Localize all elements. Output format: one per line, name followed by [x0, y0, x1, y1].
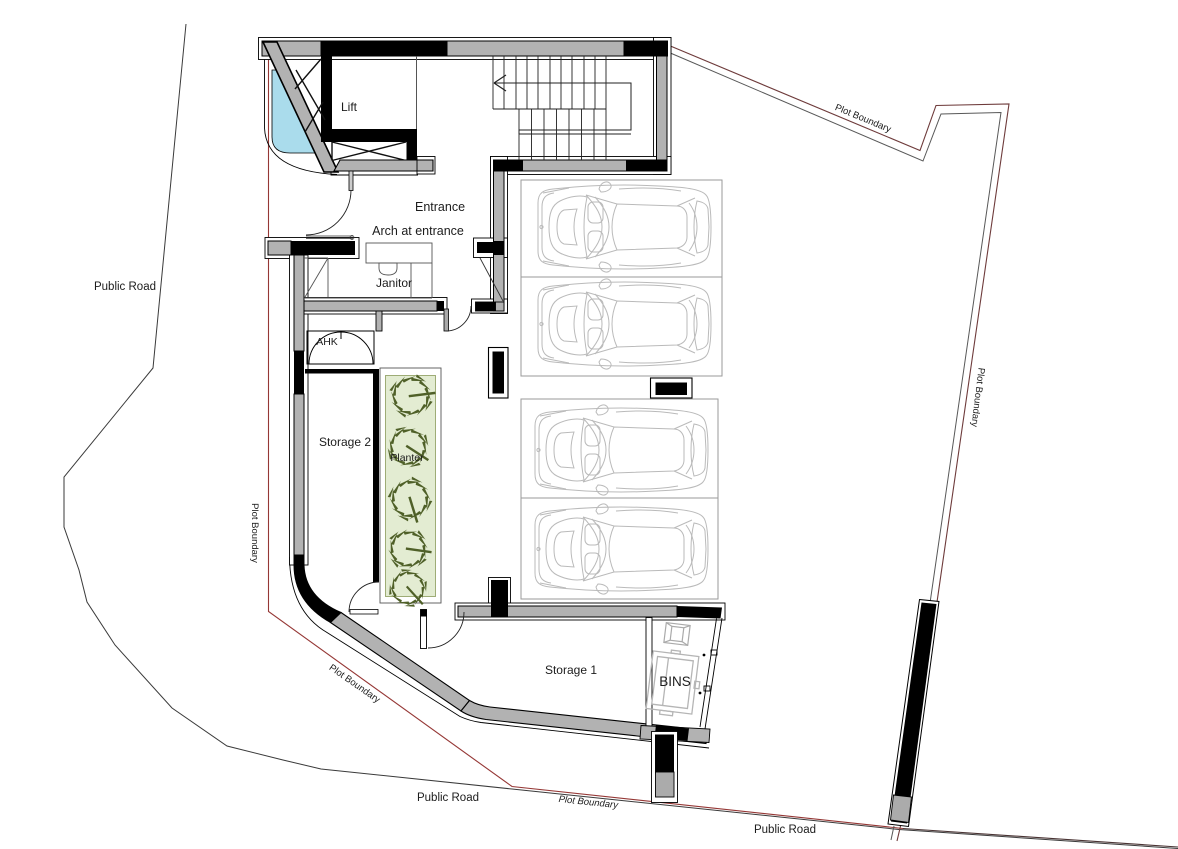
- svg-text:Entrance: Entrance: [415, 200, 465, 214]
- svg-text:Lift: Lift: [341, 100, 358, 114]
- svg-text:BINS: BINS: [659, 674, 691, 689]
- svg-text:Storage 1: Storage 1: [545, 663, 597, 677]
- svg-text:Plot Boundary: Plot Boundary: [249, 503, 260, 563]
- svg-text:Janitor: Janitor: [376, 276, 412, 290]
- svg-text:Public Road: Public Road: [754, 824, 816, 836]
- svg-text:AHK: AHK: [316, 336, 338, 348]
- svg-text:Public Road: Public Road: [417, 792, 479, 804]
- svg-text:Public Road: Public Road: [94, 281, 156, 293]
- svg-text:Storage 2: Storage 2: [319, 435, 371, 449]
- svg-text:Planter: Planter: [390, 452, 424, 464]
- svg-text:Arch at entrance: Arch at entrance: [372, 224, 464, 238]
